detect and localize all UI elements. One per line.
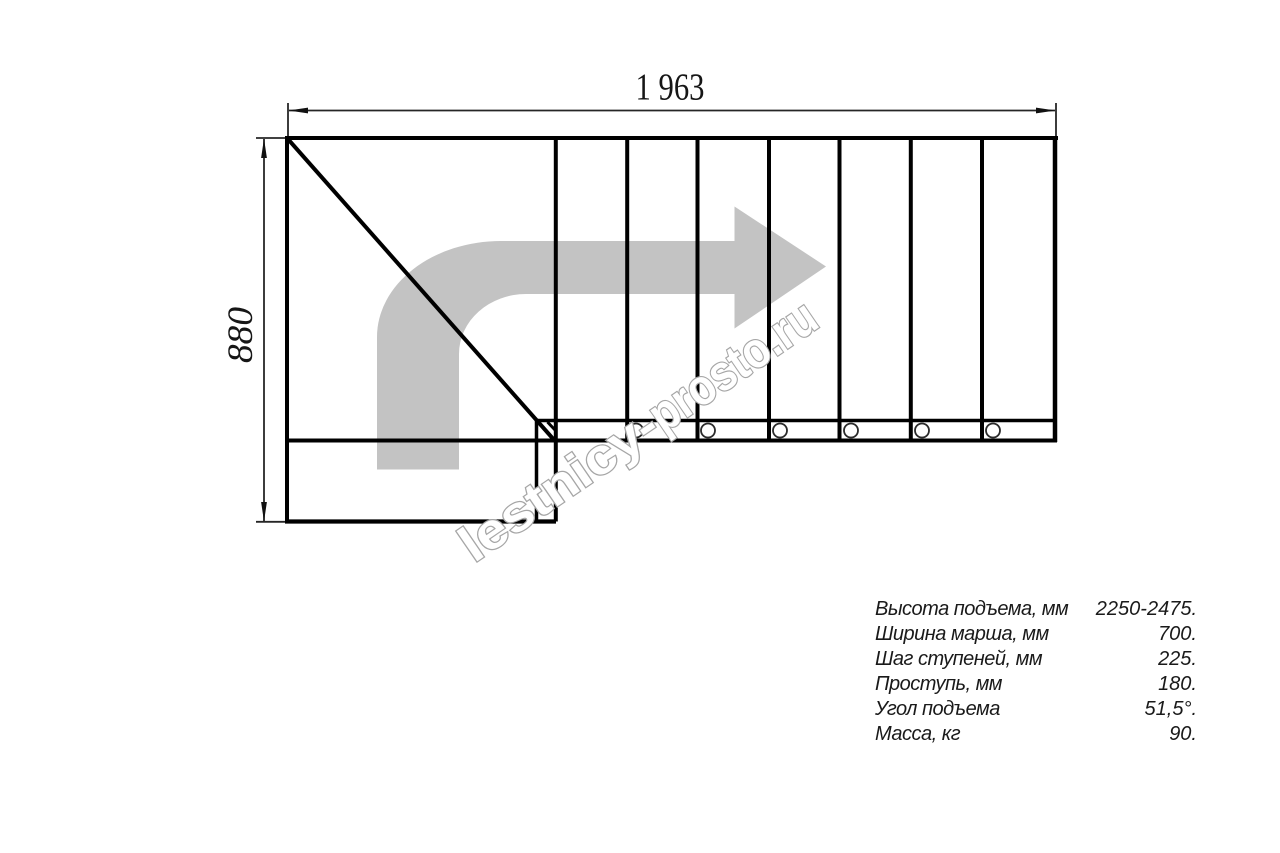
svg-text:Угол подъема: Угол подъема	[874, 698, 1000, 720]
svg-text:180.: 180.	[1158, 673, 1197, 695]
svg-text:Проступь, мм: Проступь, мм	[875, 673, 1003, 695]
svg-text:2250-2475.: 2250-2475.	[1095, 598, 1197, 620]
svg-text:51,5°.: 51,5°.	[1145, 698, 1197, 720]
svg-text:880: 880	[220, 307, 260, 363]
svg-text:Высота подъема, мм: Высота подъема, мм	[875, 598, 1069, 620]
svg-text:90.: 90.	[1169, 723, 1197, 745]
svg-text:1 963: 1 963	[636, 67, 705, 109]
svg-text:700.: 700.	[1158, 623, 1197, 645]
svg-text:Ширина марша, мм: Ширина марша, мм	[875, 623, 1049, 645]
svg-text:225.: 225.	[1157, 648, 1197, 670]
svg-text:Масса, кг: Масса, кг	[875, 723, 961, 745]
svg-text:Шаг ступеней, мм: Шаг ступеней, мм	[875, 648, 1043, 670]
